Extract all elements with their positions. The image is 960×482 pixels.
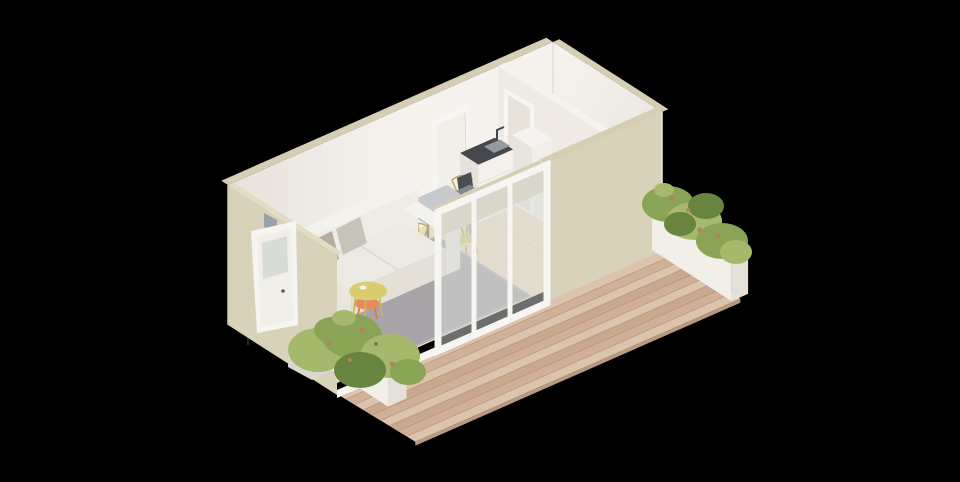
front-door — [251, 213, 298, 333]
door-handle — [281, 289, 285, 293]
floorplan-3d-render — [0, 0, 960, 482]
isometric-scene — [0, 0, 960, 482]
front-door-glass — [262, 236, 288, 279]
cup — [360, 286, 367, 290]
